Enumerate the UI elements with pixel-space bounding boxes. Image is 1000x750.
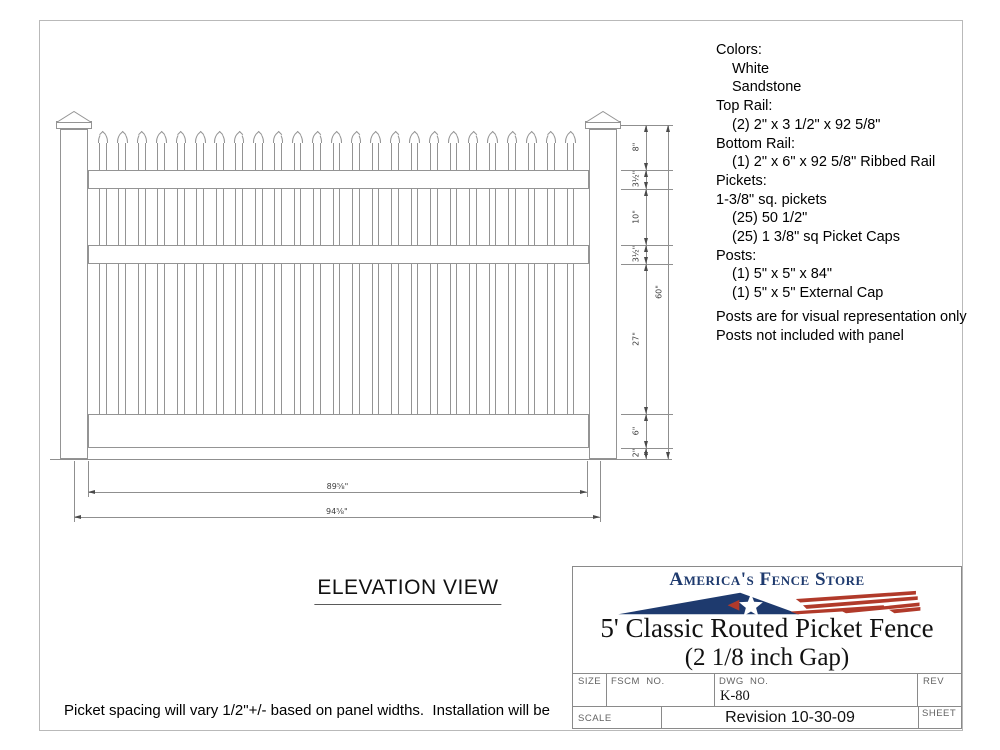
dimension-label: 89⅝" — [327, 482, 349, 491]
spec-line: Sandstone — [716, 78, 967, 97]
spec-line: Top Rail: — [716, 97, 967, 116]
picket-cap — [409, 133, 420, 143]
picket-cap — [448, 133, 459, 143]
size-label: SIZE — [578, 676, 601, 687]
picket-cap — [507, 133, 518, 143]
fence-drawing-page: Colors:WhiteSandstoneTop Rail:(2) 2" x 3… — [0, 0, 1000, 750]
picket-cap — [214, 133, 225, 143]
dimension-arrow — [644, 441, 648, 448]
picket-cap — [546, 133, 557, 143]
dimension-arrow — [644, 238, 648, 245]
dimension-arrow — [74, 515, 81, 519]
picket-cap — [234, 133, 245, 143]
picket-cap — [98, 133, 109, 143]
dimension-label-total: 60" — [655, 285, 664, 299]
dimension-arrow — [644, 245, 648, 252]
note-line-1: Picket spacing will vary 1/2"+/- based o… — [64, 702, 550, 720]
dimension-label: 3½" — [632, 246, 641, 263]
title-block: America's Fence Store 5' Classic Routed … — [572, 566, 962, 729]
picket-cap — [370, 133, 381, 143]
dimension-arrow — [644, 414, 648, 421]
dimension-arrow — [666, 125, 670, 132]
spec-line: Colors: — [716, 41, 967, 60]
drawing-title: 5' Classic Routed Picket Fence — [573, 613, 961, 644]
rev-label: REV — [923, 676, 944, 687]
title-block-divider — [606, 673, 607, 706]
dimension-label: 2" — [632, 449, 641, 458]
note-text: Picket spacing will vary 1/2"+/- based o… — [64, 667, 550, 750]
revision-text: Revision 10-30-09 — [662, 709, 918, 727]
spec-line: (1) 5" x 5" External Cap — [716, 284, 967, 303]
picket-cap — [156, 133, 167, 143]
dimension-label: 10" — [632, 210, 641, 224]
extension-line — [74, 461, 75, 522]
picket-cap — [253, 133, 264, 143]
fscm-label: FSCM NO. — [611, 676, 665, 687]
picket-cap — [195, 133, 206, 143]
spec-line: Pickets: — [716, 172, 967, 191]
title-block-divider — [573, 706, 961, 707]
spec-line: (2) 2" x 3 1/2" x 92 5/8" — [716, 116, 967, 135]
dimension-label: 94⅝" — [326, 507, 348, 516]
fence-post-left — [60, 129, 88, 459]
dimension-line — [88, 492, 587, 493]
spec-line: (1) 2" x 6" x 92 5/8" Ribbed Rail — [716, 153, 967, 172]
picket-cap — [429, 133, 440, 143]
picket-cap — [292, 133, 303, 143]
dimension-label: 6" — [632, 427, 641, 436]
dimension-arrow — [644, 257, 648, 264]
title-block-divider — [573, 673, 961, 674]
picket-cap — [565, 133, 576, 143]
dimension-arrow — [666, 452, 670, 459]
picket-cap — [468, 133, 479, 143]
dimension-arrow — [88, 490, 95, 494]
spec-line: Posts: — [716, 247, 967, 266]
picket-cap — [487, 133, 498, 143]
logo-mountain — [618, 593, 799, 615]
dimension-arrow — [593, 515, 600, 519]
dimension-arrow — [644, 407, 648, 414]
dimension-label: 8" — [632, 143, 641, 152]
picket-cap — [351, 133, 362, 143]
top-rail-1 — [88, 170, 589, 189]
picket-cap — [273, 133, 284, 143]
dimension-arrow — [644, 189, 648, 196]
dimension-label: 27" — [632, 332, 641, 346]
spec-line: Posts not included with panel — [716, 327, 967, 346]
spec-line: (25) 50 1/2" — [716, 209, 967, 228]
spec-line: White — [716, 60, 967, 79]
bottom-rail — [88, 414, 589, 447]
picket-cap — [137, 133, 148, 143]
top-rail-2 — [88, 245, 589, 264]
dimension-arrow — [644, 163, 648, 170]
sheet-label: SHEET — [922, 708, 956, 719]
specs-panel: Colors:WhiteSandstoneTop Rail:(2) 2" x 3… — [716, 41, 967, 345]
fence-post-right-cap-pyramid — [585, 110, 621, 128]
dimension-arrow — [644, 182, 648, 189]
dimension-line — [668, 125, 669, 459]
dimension-label: 3½" — [632, 171, 641, 188]
ground-line — [50, 459, 672, 460]
picket-cap — [390, 133, 401, 143]
drawing-subtitle: (2 1/8 inch Gap) — [573, 644, 961, 672]
dimension-arrow — [644, 170, 648, 177]
picket-cap — [331, 133, 342, 143]
dimension-arrow — [644, 125, 648, 132]
brand-name: America's Fence Store — [573, 569, 961, 591]
fence-post-left-cap-pyramid — [56, 110, 92, 128]
dimension-line — [74, 517, 601, 518]
dwg-label: DWG NO. — [719, 676, 768, 687]
elevation-view-label: ELEVATION VIEW — [314, 576, 501, 605]
title-block-divider — [918, 706, 919, 729]
dimension-arrow — [580, 490, 587, 494]
fence-post-right — [589, 129, 617, 459]
dimension-arrow — [644, 264, 648, 271]
dimension-arrow — [644, 452, 648, 459]
picket-cap — [117, 133, 128, 143]
spec-line: (1) 5" x 5" x 84" — [716, 265, 967, 284]
dwg-number: K-80 — [720, 688, 750, 705]
extension-line — [600, 461, 601, 522]
spec-line: 1-3/8" sq. pickets — [716, 191, 967, 210]
spec-line: Bottom Rail: — [716, 135, 967, 154]
spec-line: (25) 1 3/8" sq Picket Caps — [716, 228, 967, 247]
extension-line — [587, 461, 588, 497]
picket-cap — [176, 133, 187, 143]
picket-cap — [312, 133, 323, 143]
picket-cap — [526, 133, 537, 143]
spec-line: Posts are for visual representation only — [716, 308, 967, 327]
scale-label: SCALE — [578, 713, 612, 724]
title-block-divider — [917, 673, 918, 706]
title-block-divider — [714, 673, 715, 706]
